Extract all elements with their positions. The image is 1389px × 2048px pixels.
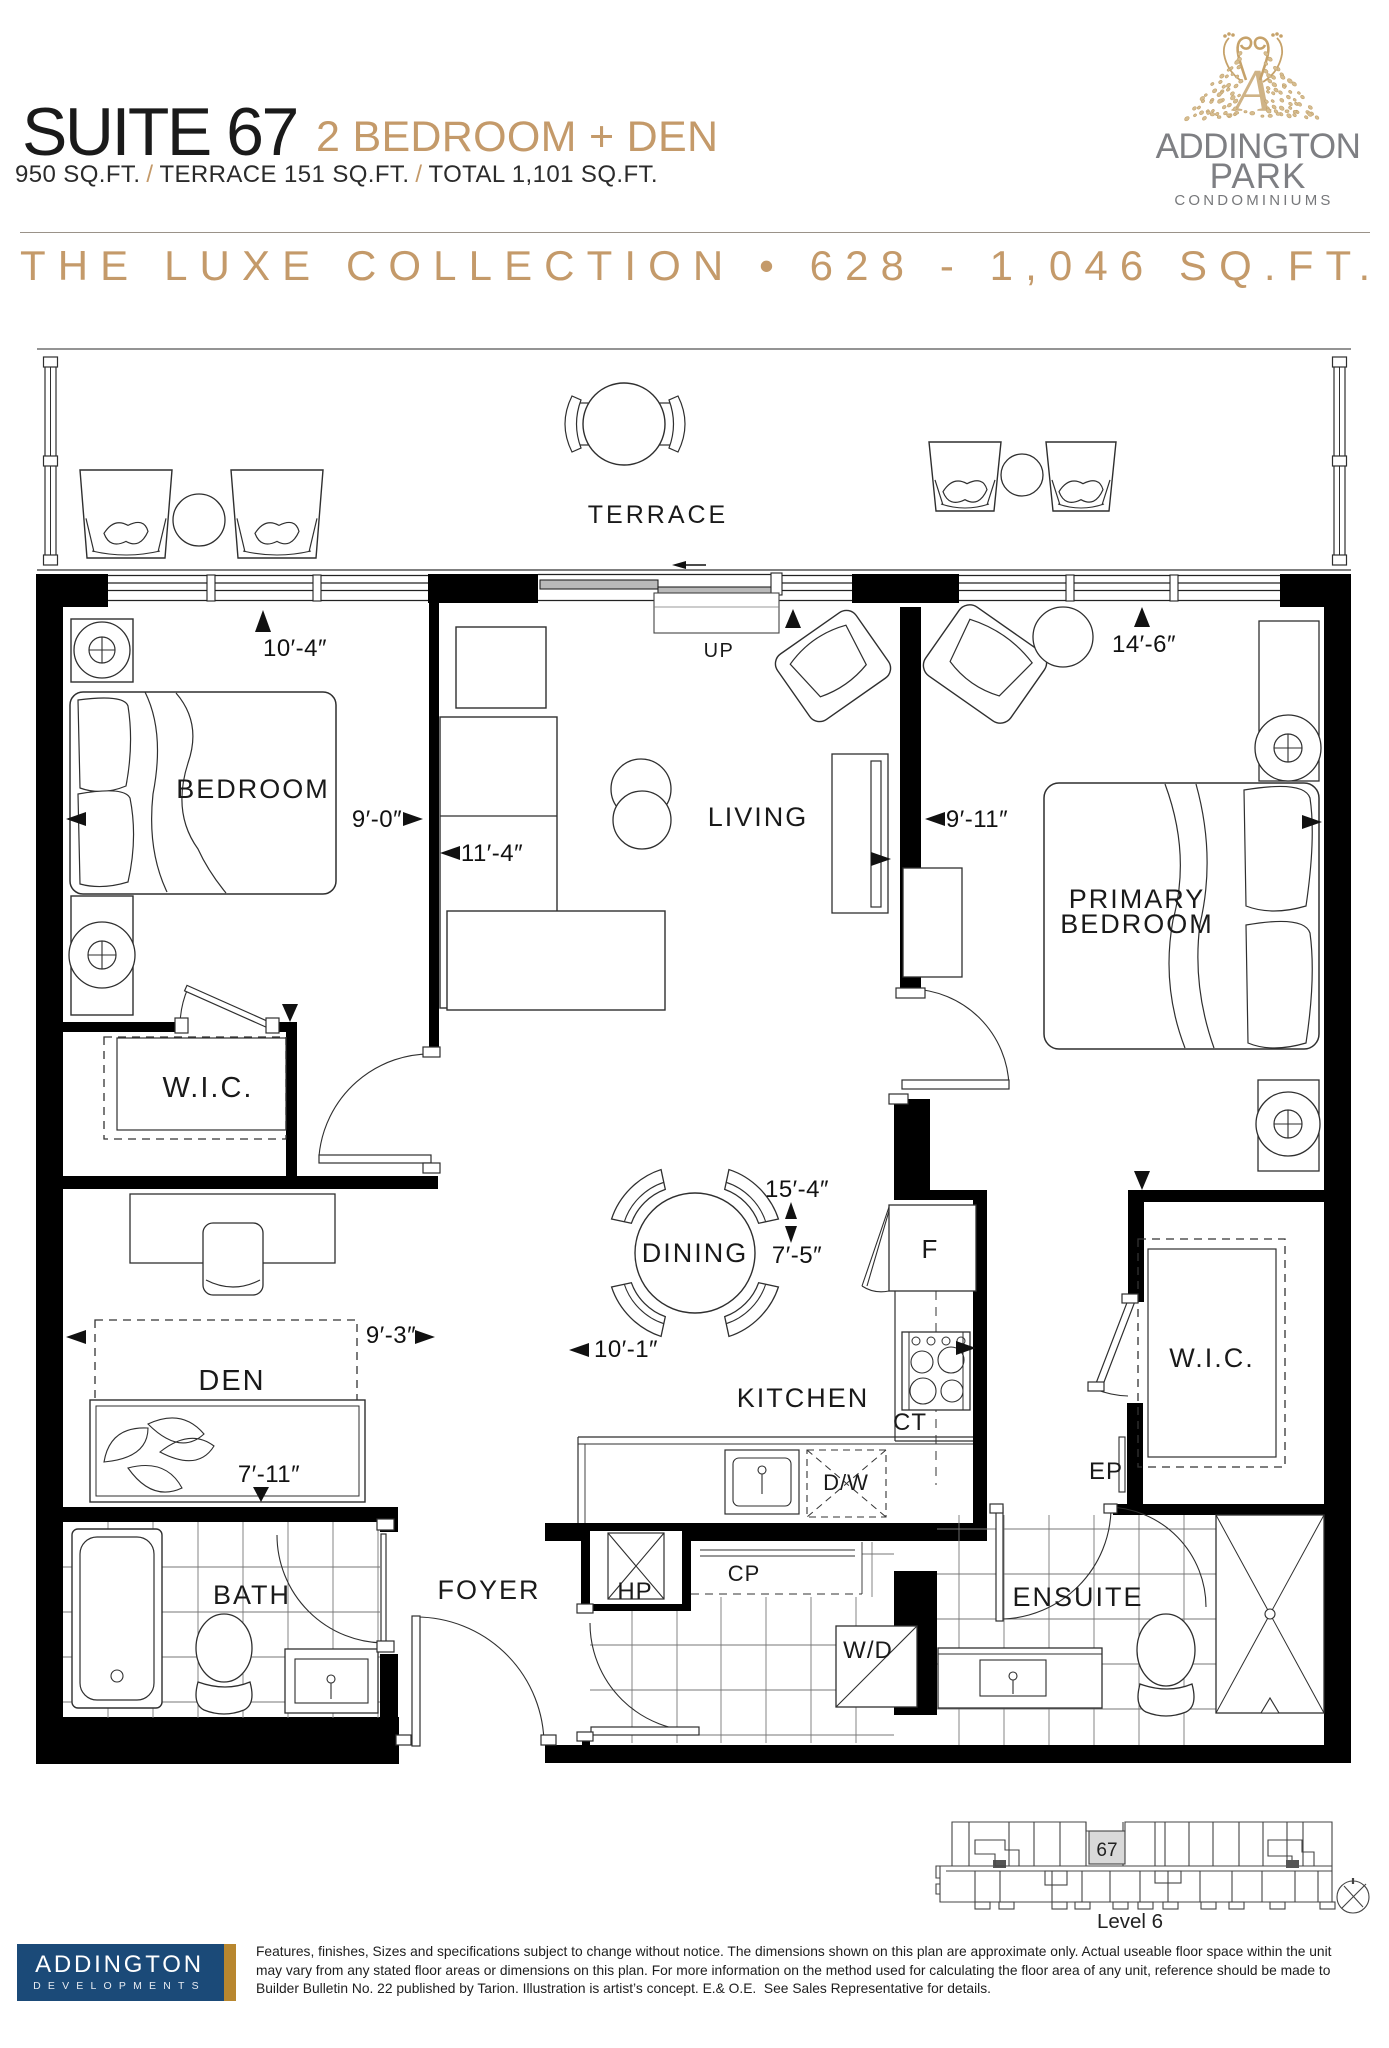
- svg-text:D/W: D/W: [823, 1470, 869, 1495]
- svg-text:BATH: BATH: [213, 1580, 291, 1610]
- svg-text:Level 6: Level 6: [1097, 1910, 1163, 1933]
- svg-text:HP: HP: [617, 1578, 652, 1605]
- svg-text:LIVING: LIVING: [708, 802, 809, 832]
- svg-text:14′-6″: 14′-6″: [1112, 631, 1176, 658]
- svg-text:TERRACE: TERRACE: [588, 501, 728, 529]
- svg-text:10′-4″: 10′-4″: [263, 635, 327, 662]
- svg-text:7′-5″: 7′-5″: [772, 1242, 822, 1269]
- svg-text:CP: CP: [728, 1561, 761, 1586]
- svg-text:9′-0″: 9′-0″: [352, 806, 402, 833]
- svg-text:BEDROOM: BEDROOM: [176, 774, 330, 804]
- svg-text:EP: EP: [1089, 1458, 1123, 1485]
- svg-text:FOYER: FOYER: [437, 1575, 540, 1605]
- svg-text:CT: CT: [893, 1409, 927, 1436]
- svg-text:9′-11″: 9′-11″: [946, 806, 1008, 833]
- svg-text:BEDROOM: BEDROOM: [1060, 909, 1214, 939]
- svg-text:ENSUITE: ENSUITE: [1012, 1582, 1143, 1612]
- svg-text:DEN: DEN: [198, 1365, 265, 1397]
- svg-text:UP: UP: [704, 640, 735, 662]
- svg-text:67: 67: [1096, 1840, 1117, 1861]
- svg-text:W.I.C.: W.I.C.: [163, 1072, 254, 1104]
- svg-text:W/D: W/D: [843, 1637, 893, 1664]
- svg-text:W.I.C.: W.I.C.: [1169, 1343, 1255, 1373]
- svg-text:9′-3″: 9′-3″: [366, 1322, 416, 1349]
- svg-text:10′-1″: 10′-1″: [594, 1336, 658, 1363]
- svg-text:DINING: DINING: [642, 1238, 749, 1268]
- svg-text:7′-11″: 7′-11″: [238, 1461, 300, 1488]
- svg-text:11′-4″: 11′-4″: [461, 840, 523, 867]
- svg-text:F: F: [922, 1234, 939, 1264]
- svg-text:15′-4″: 15′-4″: [765, 1176, 829, 1203]
- svg-text:KITCHEN: KITCHEN: [737, 1383, 870, 1413]
